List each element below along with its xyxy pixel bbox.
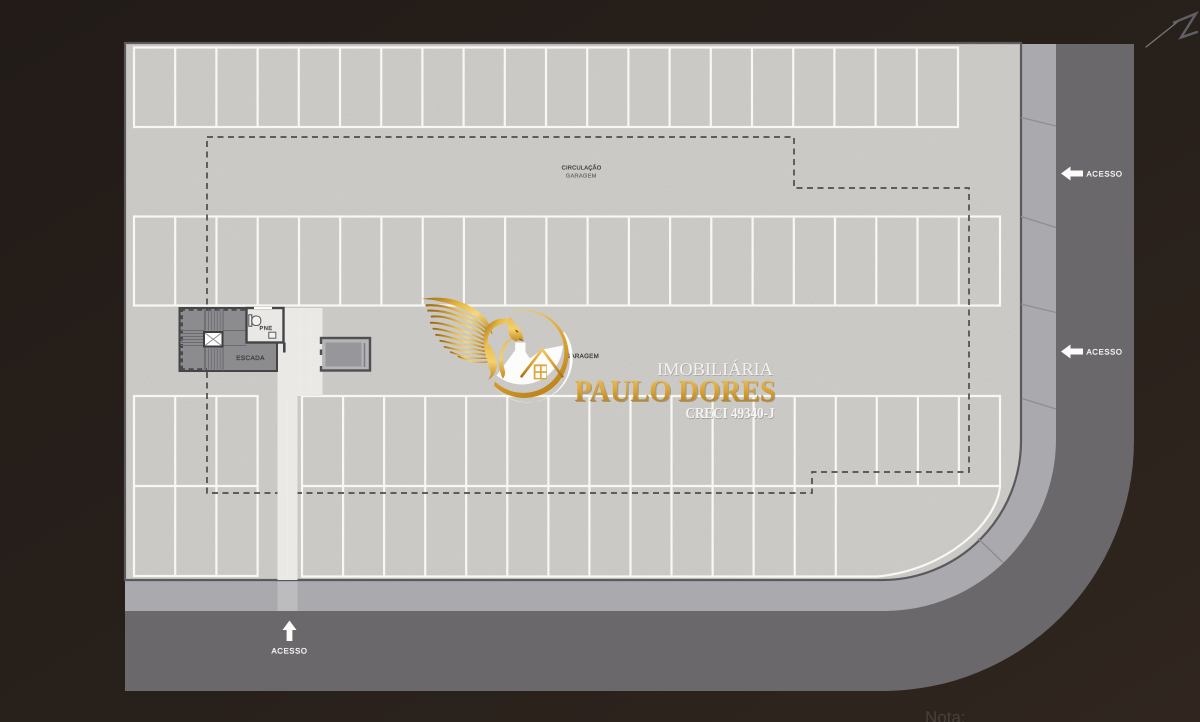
svg-text:ACESSO: ACESSO [271, 647, 307, 656]
svg-text:GARAGEM: GARAGEM [566, 173, 597, 179]
svg-text:ACESSO: ACESSO [1087, 169, 1123, 178]
svg-text:PNE: PNE [259, 326, 272, 332]
svg-text:CRECI 49340-J: CRECI 49340-J [686, 406, 775, 422]
svg-text:ESCADA: ESCADA [236, 355, 265, 362]
svg-text:Nota:: Nota: [925, 708, 966, 722]
svg-text:PAULO DORES: PAULO DORES [575, 373, 776, 408]
svg-text:ACESSO: ACESSO [1087, 347, 1123, 356]
svg-text:CIRCULAÇÃO: CIRCULAÇÃO [562, 164, 602, 171]
